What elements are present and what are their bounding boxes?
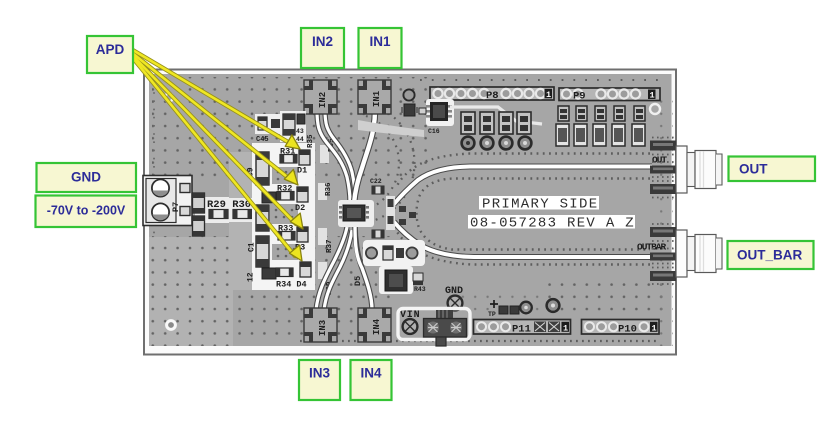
- svg-text:C1: C1: [248, 242, 257, 252]
- svg-text:IN2: IN2: [312, 34, 333, 49]
- svg-text:OUTBAR: OUTBAR: [637, 242, 667, 253]
- svg-text:1: 1: [650, 91, 655, 101]
- svg-text:R34 D4: R34 D4: [276, 280, 307, 290]
- svg-text:R43: R43: [414, 286, 426, 293]
- svg-text:C22: C22: [370, 178, 382, 185]
- svg-text:IN2: IN2: [318, 92, 328, 108]
- svg-text:IN1: IN1: [369, 34, 391, 49]
- svg-text:P8: P8: [486, 90, 499, 102]
- svg-text:IN4: IN4: [372, 318, 382, 335]
- svg-text:P11: P11: [512, 324, 531, 336]
- svg-text:IN3: IN3: [309, 366, 331, 381]
- svg-text:IN3: IN3: [318, 320, 328, 336]
- svg-text:08-057283 REV A Z: 08-057283 REV A Z: [470, 216, 635, 232]
- svg-text:12: 12: [247, 272, 256, 282]
- svg-text:OUT: OUT: [652, 155, 667, 166]
- svg-text:IN1: IN1: [372, 90, 382, 107]
- svg-text:C45: C45: [256, 136, 269, 144]
- svg-text:R37: R37: [326, 239, 334, 253]
- svg-text:GND: GND: [71, 170, 101, 185]
- svg-text:1: 1: [652, 324, 657, 334]
- svg-text:D2: D2: [295, 203, 305, 213]
- svg-text:TP: TP: [488, 311, 496, 318]
- svg-text:IN4: IN4: [360, 366, 382, 381]
- svg-text:44: 44: [296, 136, 304, 143]
- svg-text:P10: P10: [618, 324, 637, 336]
- svg-text:R35: R35: [307, 134, 315, 148]
- svg-text:43: 43: [296, 128, 304, 135]
- svg-text:OUT_BAR: OUT_BAR: [737, 248, 803, 263]
- svg-text:D1: D1: [297, 166, 307, 176]
- svg-text:P9: P9: [573, 91, 586, 103]
- svg-text:1: 1: [563, 324, 568, 334]
- svg-text:R36: R36: [325, 182, 333, 196]
- svg-text:PRIMARY SIDE: PRIMARY SIDE: [482, 197, 598, 213]
- svg-text:APD: APD: [96, 42, 125, 57]
- svg-text:1: 1: [546, 90, 551, 100]
- svg-text:OUT: OUT: [739, 162, 768, 177]
- svg-text:C16: C16: [428, 128, 440, 135]
- svg-text:P7: P7: [171, 202, 181, 212]
- svg-text:-70V to -200V: -70V to -200V: [47, 204, 126, 218]
- svg-text:D5: D5: [353, 276, 363, 286]
